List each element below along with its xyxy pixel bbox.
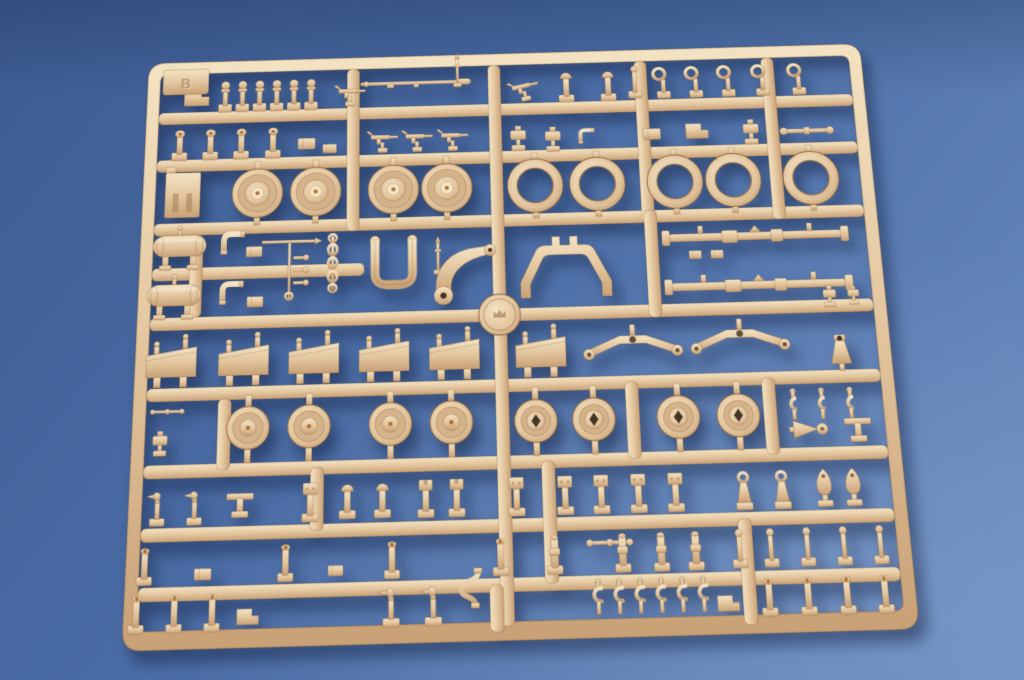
runner-horizontal: [138, 567, 901, 602]
peg-knob-part: [202, 129, 218, 160]
block-s-part: [194, 568, 211, 580]
eyelet-part: [681, 64, 703, 98]
peg-ball-part: [218, 81, 232, 112]
post-ball-part: [871, 525, 889, 564]
block-s-part: [711, 250, 724, 258]
gun-part: [436, 129, 468, 151]
duck-part: [145, 492, 165, 526]
clamp-u-part: [846, 387, 855, 419]
peg-knob-part: [171, 130, 188, 161]
wheel-hub-part: [226, 395, 270, 464]
shield-part: [815, 469, 834, 507]
peg-ball-part: [270, 80, 284, 111]
misc-s-part: [742, 119, 759, 144]
misc-s-part: [152, 431, 168, 456]
post-collar-part: [687, 531, 705, 570]
axle-part: [661, 222, 849, 246]
peg-ball-part: [235, 81, 249, 112]
block-l-part: [685, 123, 708, 138]
eyelet-part: [783, 61, 806, 95]
post-ball-part: [835, 526, 853, 565]
cone-plug-part: [829, 334, 852, 370]
plate-angled-part: [515, 323, 567, 377]
bracket-t-part: [226, 493, 253, 518]
equalizer-part: [689, 317, 791, 354]
slot-block-part: [164, 167, 201, 218]
sprue-letter-embossed: B: [180, 76, 192, 93]
post-cup-part: [448, 479, 465, 517]
peg-knob-part: [233, 128, 249, 159]
plate-angled-part: [145, 334, 197, 389]
peg-knob-part: [265, 128, 281, 159]
misc-s-part: [822, 286, 837, 307]
peg-ball-part: [304, 79, 318, 110]
hbar-part: [780, 126, 835, 135]
block-s-part: [323, 144, 337, 153]
equalizer-part: [582, 323, 683, 360]
wheel-hub-part: [369, 391, 412, 460]
block-s-part: [298, 138, 315, 149]
post-square-part: [556, 476, 574, 515]
sprue-letter-tab: B B: [163, 69, 210, 95]
wheel-diamond-part: [571, 385, 617, 455]
post-square-part: [629, 474, 648, 513]
photo-background: B B: [0, 0, 1024, 680]
wheel-diamond-part: [655, 383, 702, 453]
funnel-part: [789, 420, 829, 439]
post-ball-part: [799, 527, 817, 566]
sprue-photo: B B: [117, 40, 924, 656]
bracket-t-part: [844, 418, 873, 442]
runner-vertical: [644, 210, 663, 317]
post-dot-part: [384, 541, 400, 579]
sprue-perspective: B B: [117, 40, 924, 656]
block-s-part: [689, 251, 702, 259]
wheel-hub-part: [287, 393, 331, 462]
block-s-part: [247, 296, 263, 307]
block-s-part: [643, 128, 661, 139]
chain-part: [328, 234, 337, 292]
elbow-part: [578, 128, 595, 144]
post-dome-part: [558, 73, 574, 103]
duck-part: [183, 491, 203, 525]
block-l-part: [717, 595, 740, 611]
post-dome-part: [374, 483, 391, 518]
eyelet-part: [713, 63, 736, 97]
post-dome-part: [600, 71, 617, 101]
aframe-part: [772, 471, 791, 509]
wheel-diamond-part: [514, 387, 559, 457]
post-collar-part: [653, 532, 671, 571]
clamp-u-part: [818, 388, 827, 420]
plate-angled-part: [218, 332, 270, 387]
misc-s-part: [545, 127, 561, 152]
elbow-part: [221, 231, 245, 255]
aframe-part: [734, 472, 753, 510]
peg-ball-part: [253, 80, 267, 111]
post-cup-part: [417, 480, 434, 518]
runner-vertical: [625, 381, 642, 458]
plate-angled-part: [359, 328, 409, 383]
block-s-part: [328, 565, 343, 576]
plate-angled-part: [288, 330, 339, 385]
post-ball-part: [762, 528, 780, 567]
shield-part: [844, 468, 863, 506]
sprue-position: B B: [124, 20, 900, 641]
gun-part: [506, 77, 542, 104]
runner-vertical: [347, 69, 360, 231]
runner-vertical: [490, 585, 505, 633]
block-l-part: [236, 609, 258, 625]
wheel-diamond-part: [715, 381, 763, 451]
eyelet-part: [649, 65, 671, 99]
clamp-u-part: [790, 388, 798, 420]
post-dot-part: [277, 544, 293, 582]
wheel-hub-part: [430, 389, 474, 458]
elbow-part: [219, 281, 243, 305]
plate-angled-part: [429, 326, 480, 380]
block-s-part: [246, 246, 262, 257]
hbar-part: [150, 409, 184, 415]
post-square-part: [666, 473, 685, 512]
runner-logo-disc: [478, 293, 521, 335]
runner-vertical: [761, 378, 780, 455]
gun-part: [366, 131, 398, 153]
post-square-part: [592, 475, 610, 514]
arch-part: [519, 235, 612, 298]
post-dome-part: [339, 484, 356, 519]
gun-part: [401, 130, 433, 152]
misc-s-part: [510, 126, 526, 151]
swing-arm-part: [433, 244, 497, 305]
peg-ball-part: [287, 79, 301, 110]
yoke-part: [370, 235, 418, 285]
